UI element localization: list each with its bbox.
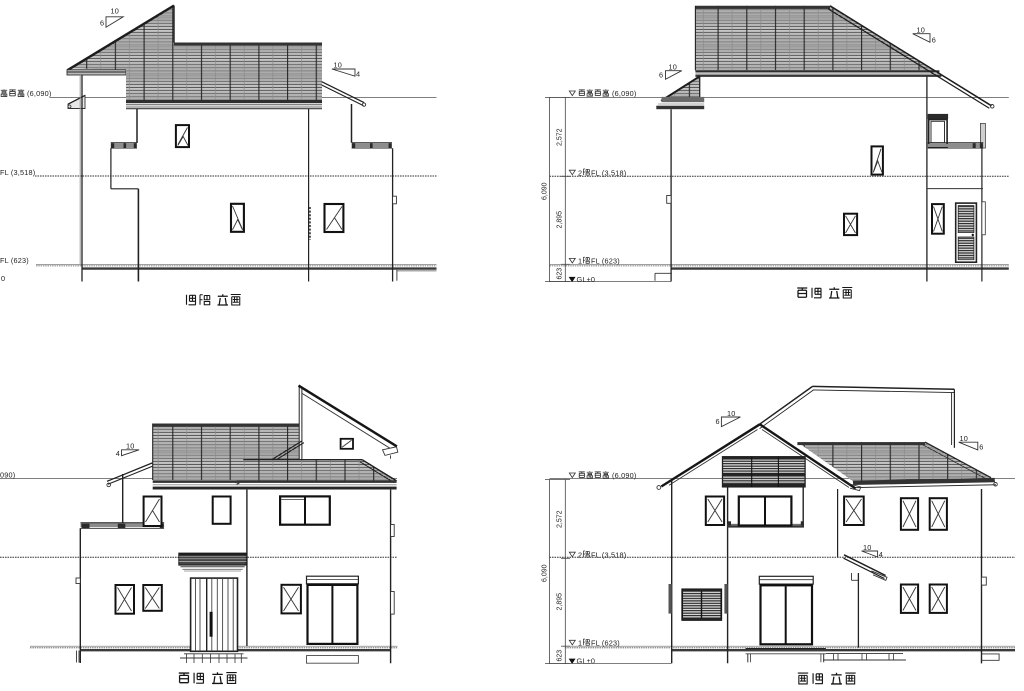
svg-text:10: 10 [727,409,736,418]
svg-text:1: 1 [578,639,582,648]
svg-text:6,090: 6,090 [542,182,549,200]
svg-text:10: 10 [111,6,120,15]
svg-text:4: 4 [356,69,360,78]
svg-text:623: 623 [557,268,564,280]
svg-text:2,895: 2,895 [557,593,564,611]
svg-text:FL (3,518): FL (3,518) [591,168,626,177]
svg-text:6: 6 [100,18,104,27]
svg-text:6: 6 [979,443,983,452]
svg-text:4: 4 [116,449,120,458]
svg-text:6: 6 [932,36,936,45]
svg-text:090): 090) [0,471,15,480]
svg-text:FL (3,518): FL (3,518) [591,550,626,559]
svg-text:FL (623): FL (623) [591,639,620,648]
svg-text:10: 10 [126,442,135,451]
svg-text:623: 623 [557,650,564,662]
svg-text:4: 4 [879,550,883,559]
svg-text:2,895: 2,895 [557,211,564,229]
svg-text:6: 6 [716,417,720,426]
svg-text:10: 10 [960,434,969,443]
svg-text:2: 2 [578,168,582,177]
svg-text:0: 0 [1,274,5,283]
svg-text:FL (623): FL (623) [591,257,620,266]
svg-text:(6,090): (6,090) [612,89,637,98]
svg-text:(6,090): (6,090) [612,471,637,480]
svg-text:1: 1 [578,257,582,266]
svg-text:FL (623): FL (623) [0,256,29,265]
svg-text:FL (3,518): FL (3,518) [0,168,35,177]
svg-text:2: 2 [578,550,582,559]
svg-text:GL±0: GL±0 [577,275,596,284]
svg-text:2,572: 2,572 [557,128,564,146]
svg-text:10: 10 [334,61,343,70]
svg-text:(6,090): (6,090) [27,89,52,98]
svg-text:6,090: 6,090 [542,564,549,582]
svg-text:10: 10 [669,63,678,72]
svg-text:GL±0: GL±0 [577,657,596,666]
svg-text:6: 6 [659,70,663,79]
svg-text:2,572: 2,572 [557,510,564,528]
